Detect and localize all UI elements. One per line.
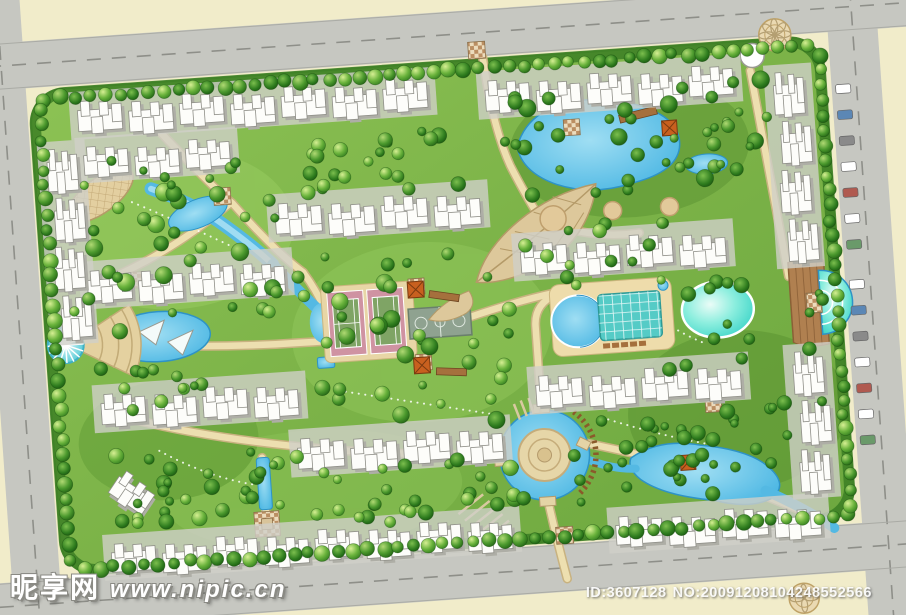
- stamp-serial: NO:20091208104248552566: [673, 585, 872, 601]
- masterplan-svg: [0, 0, 906, 615]
- masterplan-image: 昵享网www.nipic.cn ID:3607128NO:20091208104…: [0, 0, 906, 615]
- stamp-id: ID:3607128: [586, 585, 667, 601]
- watermark-site-name: 昵享网: [10, 572, 100, 603]
- swimming-pool-complex: [549, 277, 676, 357]
- watermark: 昵享网www.nipic.cn: [10, 566, 286, 606]
- watermark-site-url: www.nipic.cn: [110, 576, 286, 603]
- id-stamp: ID:3607128NO:20091208104248552566: [580, 585, 872, 601]
